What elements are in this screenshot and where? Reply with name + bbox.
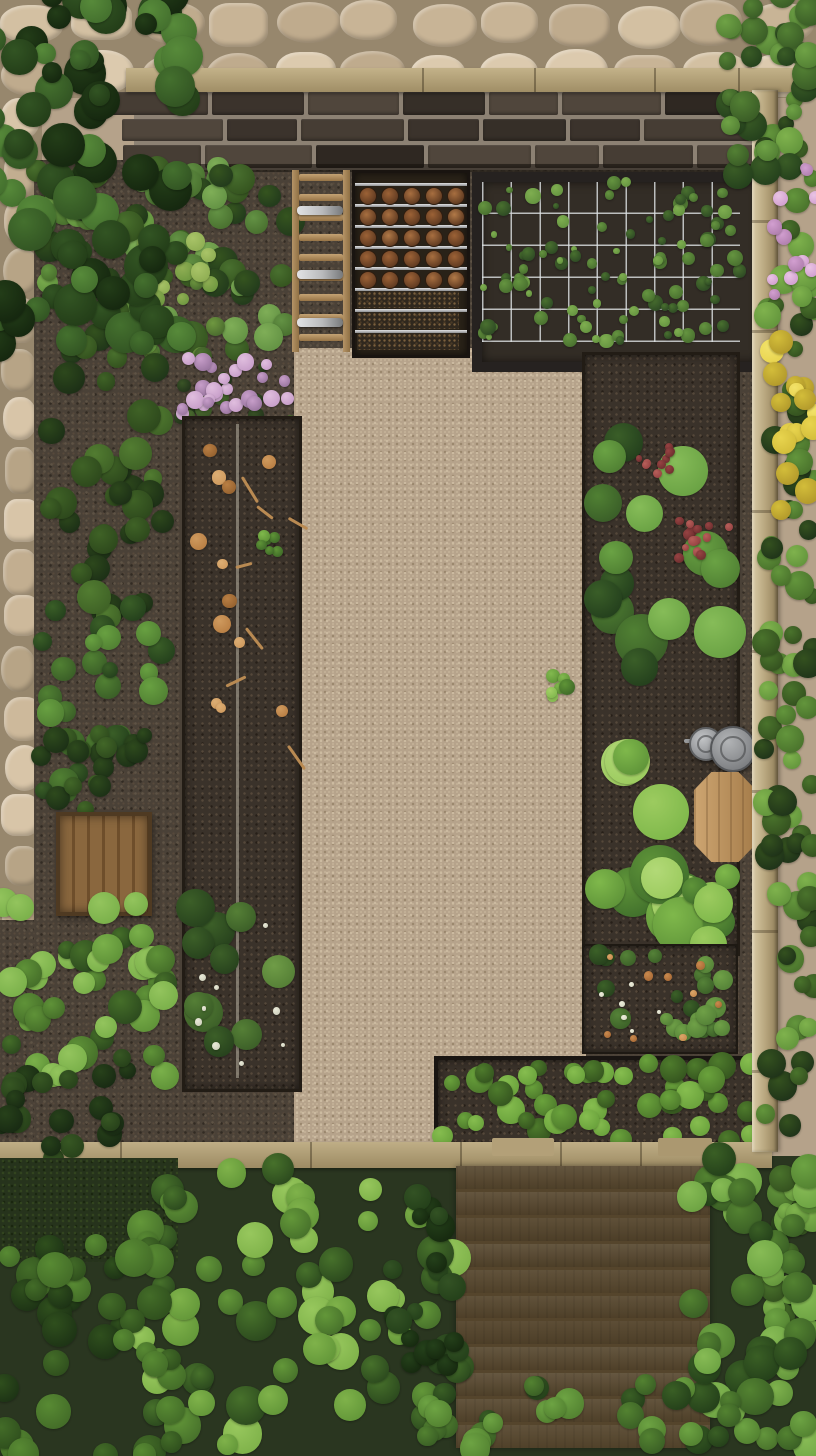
foliage-blob <box>665 448 674 457</box>
paving-stone <box>277 2 341 42</box>
foliage-blob <box>703 533 712 542</box>
foliage-blob <box>794 389 816 411</box>
foliage-blob <box>786 545 808 567</box>
foliage-blob <box>120 595 146 621</box>
seed-pot <box>359 229 377 247</box>
seed-pot <box>381 187 399 205</box>
top-right-corner-bush <box>726 0 816 180</box>
foliage-blob <box>258 1385 288 1415</box>
foliage-blob <box>156 1396 185 1425</box>
foliage-blob <box>675 194 686 205</box>
foliage-blob <box>614 1067 632 1085</box>
yellow-flowers-right <box>764 336 816 522</box>
foliage-blob <box>386 1308 412 1334</box>
foliage-blob <box>36 1394 71 1429</box>
foliage-blob <box>167 322 196 351</box>
hedge-foliage <box>440 1062 752 1142</box>
foliage-blob <box>134 273 158 297</box>
foliage-blob <box>694 1348 720 1374</box>
deck-plank <box>456 1347 710 1370</box>
deck-plank <box>456 1244 710 1267</box>
foliage-blob <box>188 1390 214 1416</box>
foliage-blob <box>525 188 540 203</box>
foliage-blob <box>1 39 38 76</box>
bin-lid-ring <box>720 736 745 761</box>
foliage-blob <box>146 945 176 975</box>
paving-stone <box>413 4 477 47</box>
paving-stone <box>209 3 268 47</box>
foliage-blob <box>642 461 650 469</box>
foliage-blob <box>719 52 737 70</box>
foliage-blob <box>544 1397 566 1419</box>
foliage-blob <box>149 981 178 1010</box>
foliage-blob <box>222 317 248 343</box>
wood-joint <box>310 1142 312 1168</box>
rack-rung <box>299 214 343 221</box>
wall-brick <box>227 119 297 142</box>
rack-rung <box>299 234 343 241</box>
seed-pot <box>403 229 421 247</box>
foliage-blob <box>506 244 512 250</box>
overhanging-tree <box>0 0 185 350</box>
foliage-blob <box>790 1411 816 1437</box>
foliage-blob <box>690 1116 710 1136</box>
paving-stone <box>3 397 36 440</box>
foliage-blob <box>796 696 816 719</box>
foliage-blob <box>522 247 536 261</box>
rosette-flowers-white <box>198 898 284 1073</box>
seed-pot <box>403 271 421 289</box>
foliage-blob <box>190 533 207 550</box>
foliage-blob <box>675 517 683 525</box>
tray-divider <box>355 183 467 186</box>
foliage-blob <box>296 1262 322 1288</box>
foliage-blob <box>162 161 191 190</box>
gravel-sprout <box>548 672 574 702</box>
foliage-blob <box>539 250 547 258</box>
foliage-blob <box>717 188 727 198</box>
foliage-blob <box>247 396 261 410</box>
foliage-blob <box>772 430 796 454</box>
foliage-blob <box>648 598 690 640</box>
foliage-blob <box>663 210 674 221</box>
deck-plank <box>456 1218 710 1241</box>
seed-pot <box>381 250 399 268</box>
foliage-blob <box>359 1178 382 1201</box>
foliage-blob <box>771 393 790 412</box>
foliage-blob <box>754 302 780 328</box>
pink-roses-right <box>772 162 816 304</box>
foliage-blob <box>53 362 85 394</box>
foliage-blob <box>708 1426 729 1447</box>
foliage-blob <box>43 1350 69 1376</box>
foliage-blob <box>41 123 85 167</box>
foliage-blob <box>705 278 712 285</box>
foliage-blob <box>67 740 89 762</box>
foliage-blob <box>619 315 628 324</box>
foliage-blob <box>480 319 496 335</box>
foliage-blob <box>761 537 783 559</box>
deck-plank <box>456 1321 710 1344</box>
foliage-blob <box>588 286 596 294</box>
foliage-blob <box>660 1055 687 1082</box>
foliage-blob <box>580 321 592 333</box>
foliage-blob <box>202 1006 206 1010</box>
foliage-blob <box>89 775 111 797</box>
seed-pot <box>425 187 443 205</box>
foliage-blob <box>8 1438 39 1456</box>
foliage-blob <box>203 397 214 408</box>
foliage-blob <box>767 274 778 285</box>
foliage-blob <box>506 187 512 193</box>
foliage-blob <box>239 1061 244 1066</box>
foliage-blob <box>629 982 634 987</box>
foliage-blob <box>771 565 791 585</box>
foliage-blob <box>710 295 719 304</box>
foliage-blob <box>736 1378 773 1415</box>
foliage-blob <box>45 600 66 621</box>
foliage-blob <box>797 886 816 910</box>
foliage-blob <box>16 92 50 126</box>
foliage-blob <box>557 257 563 263</box>
foliage-blob <box>412 1208 429 1225</box>
wall-brick <box>562 92 661 115</box>
foliage-blob <box>97 372 116 391</box>
foliage-blob <box>658 237 666 245</box>
foliage-blob <box>579 1110 599 1130</box>
left-bushes-mid <box>34 368 164 618</box>
foliage-blob <box>630 1035 637 1042</box>
foliage-blob <box>186 232 205 251</box>
foliage-blob <box>665 465 674 474</box>
foliage-blob <box>716 14 740 38</box>
lettuce-lower-light <box>584 748 700 948</box>
foliage-blob <box>361 1355 389 1383</box>
foliage-blob <box>743 0 764 18</box>
foliage-blob <box>202 184 227 209</box>
foliage-blob <box>621 648 658 685</box>
foliage-blob <box>584 580 621 617</box>
foliage-blob <box>59 1070 78 1089</box>
foliage-blob <box>96 276 130 310</box>
foliage-blob <box>73 972 95 994</box>
wood-joint <box>460 1142 462 1168</box>
foliage-blob <box>279 375 291 387</box>
foliage-blob <box>483 1413 502 1432</box>
garden-tool <box>297 206 343 215</box>
rack-rung <box>299 194 343 201</box>
conifer-dark <box>392 1196 466 1366</box>
foliage-blob <box>788 256 804 272</box>
soil-row <box>357 291 459 308</box>
foliage-blob <box>717 1404 740 1427</box>
foliage-blob <box>40 498 61 519</box>
foliage-blob <box>315 1306 344 1335</box>
foliage-blob <box>102 662 118 678</box>
foliage-blob <box>269 532 280 543</box>
foliage-blob <box>784 271 798 285</box>
foliage-blob <box>805 263 816 276</box>
foliage-blob <box>404 1184 431 1211</box>
foliage-blob <box>182 352 195 365</box>
paving-stone <box>5 447 37 494</box>
foliage-blob <box>438 1273 466 1301</box>
foliage-blob <box>513 277 528 292</box>
foliage-blob <box>661 303 669 311</box>
dry-twig <box>256 505 274 520</box>
foliage-blob <box>135 13 157 35</box>
foliage-blob <box>212 1042 220 1050</box>
seed-pot <box>447 229 465 247</box>
paving-stone <box>618 6 681 50</box>
foliage-blob <box>115 1239 153 1277</box>
foliage-blob <box>681 328 695 342</box>
foliage-blob <box>217 1434 237 1454</box>
dry-twig <box>235 562 253 569</box>
foliage-blob <box>740 17 768 45</box>
deck-plank <box>456 1192 710 1215</box>
foliage-blob <box>619 1001 625 1007</box>
foliage-blob <box>563 333 577 347</box>
wood-joint <box>422 68 424 92</box>
foliage-blob <box>674 553 684 563</box>
foliage-blob <box>358 1211 378 1231</box>
paving-stone <box>549 4 610 47</box>
left-bush-above-crate <box>40 732 156 818</box>
foliage-blob <box>56 325 87 356</box>
foliage-blob <box>778 947 796 965</box>
foliage-blob <box>557 215 570 228</box>
wall-brick <box>489 92 558 115</box>
foliage-blob <box>642 289 655 302</box>
foliage-blob <box>700 234 713 247</box>
foliage-blob <box>319 1247 353 1281</box>
foliage-blob <box>782 1272 812 1302</box>
soil-row <box>357 312 459 329</box>
foliage-blob <box>784 626 802 644</box>
deck-plank <box>456 1270 710 1293</box>
dry-twig <box>226 676 247 688</box>
seed-pot <box>447 271 465 289</box>
foliage-blob <box>524 1376 544 1396</box>
foliage-blob <box>757 140 778 161</box>
foliage-blob <box>518 1112 535 1129</box>
aerial-garden-photo <box>0 0 816 1456</box>
foliage-blob <box>119 437 152 470</box>
foliage-blob <box>526 290 532 296</box>
foliage-blob <box>93 1443 118 1456</box>
foliage-blob <box>163 1186 187 1210</box>
foliage-blob <box>677 240 686 249</box>
brick-wall <box>134 90 764 170</box>
foliage-blob <box>763 362 787 386</box>
foliage-blob <box>777 47 796 66</box>
foliage-blob <box>60 1134 84 1158</box>
foliage-blob <box>694 606 745 657</box>
foliage-blob <box>668 303 678 313</box>
foliage-blob <box>383 1260 402 1279</box>
foliage-blob <box>635 1374 656 1395</box>
wall-brick <box>212 92 304 115</box>
foliage-blob <box>630 1029 634 1033</box>
wall-brick <box>408 119 479 142</box>
seed-pot <box>403 187 421 205</box>
foliage-blob <box>245 210 269 234</box>
foliage-blob <box>616 336 624 344</box>
foliage-blob <box>702 1142 736 1176</box>
foliage-blob <box>653 256 663 266</box>
foliage-blob <box>273 1007 281 1015</box>
foliage-blob <box>64 777 82 795</box>
rack-rung <box>299 334 343 341</box>
rack-rung <box>299 294 343 301</box>
foliage-blob <box>478 201 492 215</box>
foliage-blob <box>799 520 816 540</box>
foliage-blob <box>101 1113 119 1131</box>
paving-stone <box>340 0 398 40</box>
berry-flowers-white <box>596 954 720 1034</box>
foliage-blob <box>613 248 619 254</box>
foliage-blob <box>92 220 131 259</box>
foliage-blob <box>731 1274 763 1306</box>
foliage-blob <box>795 478 816 504</box>
foliage-blob <box>756 1104 776 1124</box>
foliage-blob <box>426 1339 446 1359</box>
foliage-blob <box>693 525 702 534</box>
foliage-blob <box>559 679 575 695</box>
wall-brick <box>301 119 404 142</box>
left-bush-dark-low <box>0 1052 130 1162</box>
foliage-blob <box>32 1072 53 1093</box>
foliage-blob <box>767 882 790 905</box>
seed-pot <box>359 208 377 226</box>
foliage-blob <box>139 677 167 705</box>
foliage-blob <box>8 208 52 252</box>
foliage-blob <box>773 191 788 206</box>
foliage-blob <box>597 222 607 232</box>
seed-pot <box>425 229 443 247</box>
foliage-blob <box>113 1049 131 1067</box>
foliage-blob <box>0 1374 19 1403</box>
foliage-blob <box>261 359 272 370</box>
wall-brick <box>665 92 721 115</box>
foliage-blob <box>85 1234 106 1255</box>
foliage-blob <box>218 373 230 385</box>
garden-tool <box>297 270 343 279</box>
foliage-blob <box>96 737 117 758</box>
foliage-blob <box>194 353 212 371</box>
foliage-blob <box>769 289 780 300</box>
foliage-blob <box>802 775 816 794</box>
foliage-blob <box>199 974 206 981</box>
foliage-blob <box>191 1366 213 1388</box>
foliage-blob <box>113 1329 135 1351</box>
deck-plank <box>456 1296 710 1319</box>
foliage-blob <box>273 1358 298 1383</box>
dry-twigs <box>210 440 290 770</box>
paving-stone <box>3 549 38 595</box>
seed-pot <box>447 208 465 226</box>
foliage-blob <box>488 1081 513 1106</box>
wood-joint <box>560 1142 562 1168</box>
foliage-blob <box>599 992 604 997</box>
foliage-blob <box>679 1422 703 1446</box>
foliage-blob <box>475 1063 494 1082</box>
foliage-blob <box>49 1109 73 1133</box>
foliage-blob <box>597 1090 616 1109</box>
trellis-bed <box>472 172 770 372</box>
foliage-blob <box>657 1010 661 1014</box>
foliage-blob <box>659 316 669 326</box>
foliage-blob <box>710 264 724 278</box>
foliage-blob <box>629 306 639 316</box>
foliage-blob <box>605 190 615 200</box>
seed-pot <box>447 250 465 268</box>
foliage-blob <box>143 1045 164 1066</box>
seed-pot <box>381 229 399 247</box>
foliage-blob <box>201 248 215 262</box>
foliage-blob <box>89 525 117 553</box>
tool-rack <box>292 170 350 352</box>
bed-sprout <box>256 534 280 554</box>
foliage-blob <box>155 66 195 106</box>
foliage-blob <box>660 1090 681 1111</box>
foliage-blob <box>425 1400 451 1426</box>
foliage-blob <box>786 104 802 120</box>
border-plank-a <box>492 1138 554 1156</box>
foliage-blob <box>639 1428 665 1454</box>
rack-rail-right <box>343 170 350 352</box>
foliage-blob <box>53 176 97 220</box>
foliage-blob <box>741 46 762 67</box>
wall-brick <box>403 92 485 115</box>
foliage-blob <box>43 727 69 753</box>
foliage-blob <box>774 1337 807 1370</box>
foliage-blob <box>534 311 548 325</box>
foliage-blob <box>662 1381 691 1410</box>
foliage-blob <box>237 353 254 370</box>
wood-joint <box>654 68 656 92</box>
foliage-blob <box>776 705 796 725</box>
foliage-blob <box>717 320 729 332</box>
foliage-blob <box>727 144 749 166</box>
foliage-blob <box>776 725 804 753</box>
foliage-blob <box>426 1252 447 1273</box>
foliage-blob <box>599 541 633 575</box>
dry-twig <box>241 476 259 503</box>
foliage-blob <box>85 634 102 651</box>
foliage-blob <box>759 681 778 700</box>
wall-brick <box>570 119 640 142</box>
foliage-blob <box>701 205 712 216</box>
seed-pot <box>381 271 399 289</box>
foliage-blob <box>679 1289 708 1318</box>
trellis-wire-grid <box>482 182 740 342</box>
foliage-blob <box>263 923 268 928</box>
red-flower-cluster-b <box>678 520 734 564</box>
foliage-blob <box>109 481 132 504</box>
foliage-blob <box>551 1104 577 1130</box>
foliage-blob <box>767 219 783 235</box>
foliage-blob <box>137 728 152 743</box>
foliage-blob <box>257 372 268 383</box>
foliage-blob <box>677 1181 707 1211</box>
foliage-blob <box>688 536 698 546</box>
foliage-blob <box>195 1018 202 1025</box>
foliage-blob <box>281 1043 285 1047</box>
foliage-blob <box>567 305 578 316</box>
foliage-blob <box>567 1066 584 1083</box>
